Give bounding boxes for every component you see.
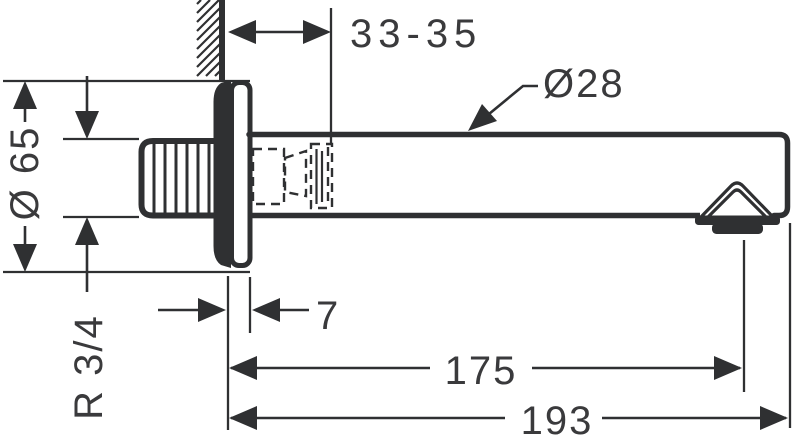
dimension-label-escutcheon-diameter: Ø 65 [3, 126, 47, 221]
dimension-outlet-projection: 175 [229, 240, 744, 393]
arrowhead-left [229, 406, 257, 430]
arrowhead-left [252, 298, 280, 322]
arrowhead-right [760, 406, 788, 430]
arrowhead-right [714, 356, 742, 380]
spout-tube-top-and-end [249, 135, 788, 216]
arrowhead-up [75, 217, 99, 245]
arrowhead-right [303, 20, 331, 44]
dimension-tube-diameter: Ø28 [468, 62, 625, 131]
outlet-nozzle [712, 223, 763, 234]
dimension-label-wall-clearance: 33-35 [350, 12, 482, 56]
escutcheon-face [232, 83, 251, 266]
arrowhead-up [13, 81, 37, 109]
wall-hatching [197, 0, 222, 76]
dimension-thread-size: R 3/4 [63, 76, 139, 420]
arrowhead-left [229, 356, 257, 380]
dimension-label-tube-diameter: Ø28 [543, 62, 625, 106]
dimension-label-escutcheon-depth: 7 [316, 294, 340, 338]
dimension-wall-clearance: 33-35 [228, 8, 482, 143]
arrowhead-down [75, 111, 99, 139]
arrowhead-down [13, 244, 37, 272]
dimension-label-outlet-projection: 175 [445, 349, 518, 393]
arrowhead-left [228, 20, 256, 44]
arrowhead-right [198, 298, 226, 322]
dimension-escutcheon-depth: 7 [158, 276, 340, 430]
escutcheon-back [214, 80, 232, 268]
valve-body-dashed [253, 149, 284, 204]
valve-cone-dashed [285, 151, 306, 196]
leader-arrowhead [468, 104, 497, 131]
hidden-internal-valve [253, 144, 332, 208]
thread-nipple-outline [142, 141, 215, 216]
bath-spout-technical-drawing: 33-35 Ø28 Ø 65 R 3/4 7 [0, 0, 802, 444]
dimension-total-projection: 193 [229, 223, 790, 443]
drawing-canvas: 33-35 Ø28 Ø 65 R 3/4 7 [0, 0, 802, 444]
dimension-label-thread-size: R 3/4 [67, 314, 111, 420]
dimension-label-total-projection: 193 [521, 399, 594, 443]
hatch-line [197, 0, 201, 4]
